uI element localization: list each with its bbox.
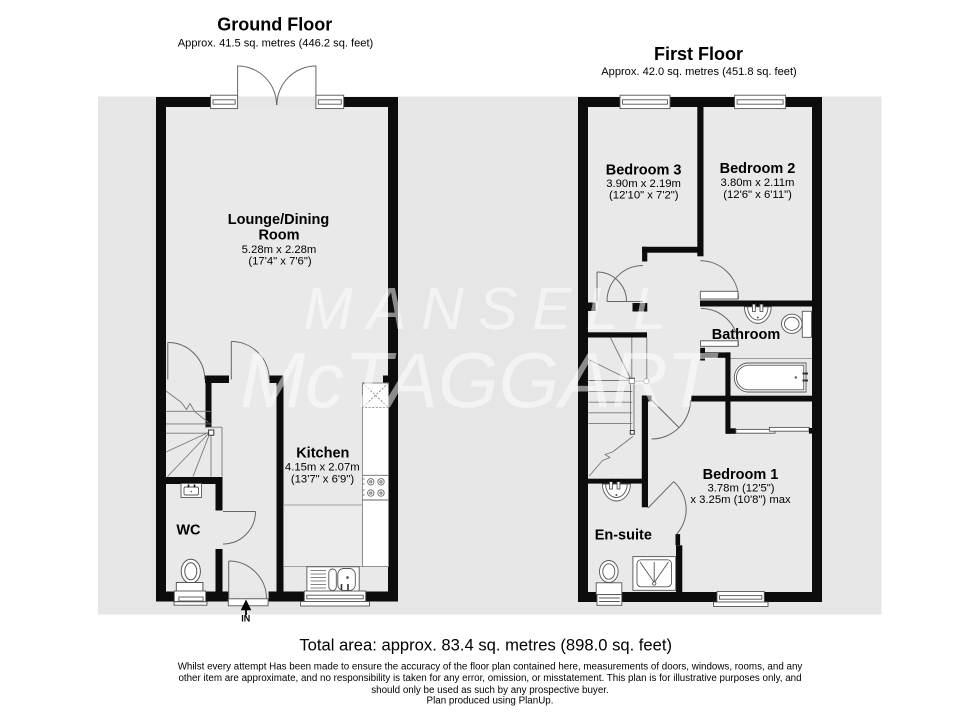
svg-text:En-suite: En-suite <box>595 528 652 544</box>
svg-text:Bathroom: Bathroom <box>712 327 780 343</box>
svg-text:should only be used as such by: should only be used as such by any prosp… <box>371 685 608 696</box>
svg-text:Bedroom 3: Bedroom 3 <box>606 163 682 179</box>
svg-text:other item are approximate, an: other item are approximate, and no respo… <box>178 673 801 684</box>
svg-text:x 3.25m (10'8") max: x 3.25m (10'8") max <box>690 494 791 506</box>
svg-text:Lounge/Dining: Lounge/Dining <box>228 212 329 228</box>
svg-text:(12'10" x 7'2"): (12'10" x 7'2") <box>609 190 679 202</box>
svg-text:(17'4" x 7'6"): (17'4" x 7'6") <box>248 256 311 268</box>
svg-text:Plan produced using PlanUp.: Plan produced using PlanUp. <box>427 695 554 706</box>
svg-text:3.80m x 2.11m: 3.80m x 2.11m <box>721 177 795 189</box>
svg-text:4.15m x 2.07m: 4.15m x 2.07m <box>285 461 360 473</box>
svg-text:WC: WC <box>176 523 201 539</box>
svg-text:Room: Room <box>258 228 299 244</box>
svg-text:Approx. 41.5 sq. metres (446.2: Approx. 41.5 sq. metres (446.2 sq. feet) <box>178 37 373 49</box>
svg-text:Bedroom 2: Bedroom 2 <box>720 161 796 177</box>
svg-text:3.78m (12'5"): 3.78m (12'5") <box>707 483 774 495</box>
svg-text:Ground Floor: Ground Floor <box>217 15 332 35</box>
svg-text:5.28m x 2.28m: 5.28m x 2.28m <box>242 244 317 256</box>
svg-text:Kitchen: Kitchen <box>296 446 349 462</box>
svg-text:First Floor: First Floor <box>654 44 743 64</box>
svg-text:IN: IN <box>241 614 250 624</box>
svg-text:3.90m x 2.19m: 3.90m x 2.19m <box>606 178 681 190</box>
svg-text:(13'7" x 6'9"): (13'7" x 6'9") <box>291 474 354 486</box>
svg-text:Whilst every attempt Has been: Whilst every attempt Has been made to en… <box>178 661 803 672</box>
svg-text:(12'6" x 6'11"): (12'6" x 6'11") <box>723 189 792 201</box>
svg-text:Approx. 42.0 sq. metres (451.8: Approx. 42.0 sq. metres (451.8 sq. feet) <box>601 66 796 78</box>
svg-text:Bedroom 1: Bedroom 1 <box>703 467 779 483</box>
svg-text:McTAGGART: McTAGGART <box>240 336 719 424</box>
svg-text:MANSELL: MANSELL <box>304 276 681 342</box>
svg-text:Total area: approx. 83.4 sq. m: Total area: approx. 83.4 sq. metres (898… <box>299 636 672 655</box>
